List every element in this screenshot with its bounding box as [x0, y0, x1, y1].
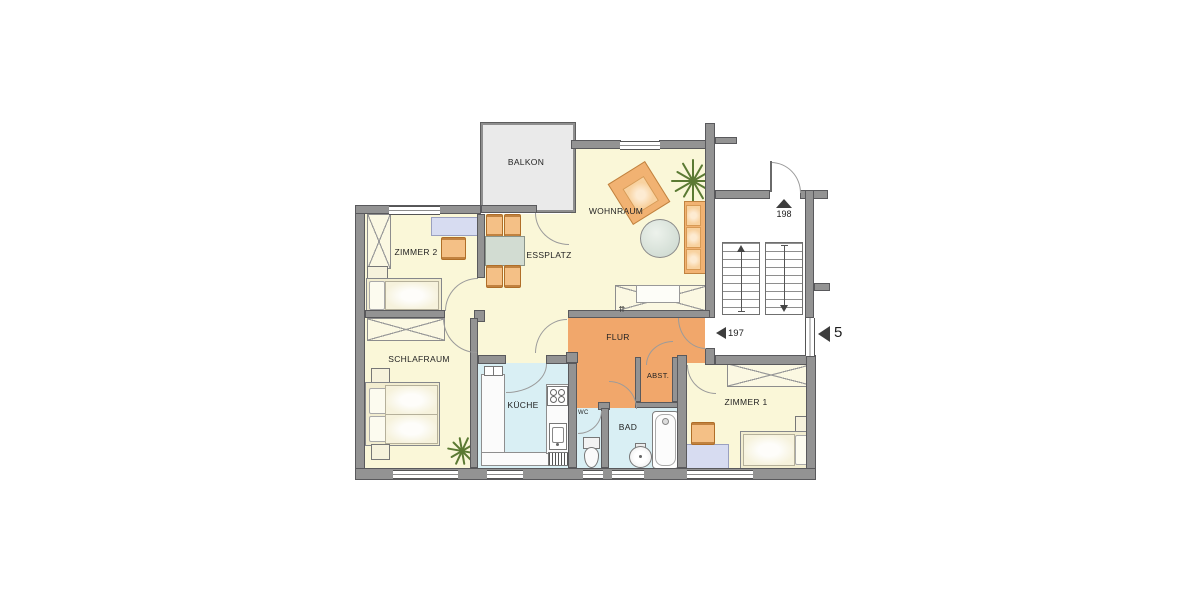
washbasin-symbol: [629, 446, 652, 468]
wall-segment: [571, 140, 621, 149]
wall-segment: [568, 363, 577, 468]
double-bed-symbol: [365, 382, 440, 446]
room-label-zimmer2: ZIMMER 2: [394, 248, 437, 257]
wall-segment: [355, 205, 365, 480]
chair-symbol: [441, 237, 466, 260]
wall-segment: [635, 357, 641, 402]
window: [393, 470, 458, 479]
window: [583, 470, 603, 479]
wall-segment: [715, 190, 770, 199]
kitchen-hob: [493, 366, 503, 376]
wall-segment: [805, 190, 814, 318]
dining-chair-symbol: [504, 265, 521, 288]
wall-segment: [814, 283, 830, 291]
stair-level-198: 198: [776, 210, 791, 219]
round-table-symbol: [640, 219, 680, 258]
dining-chair-symbol: [486, 265, 503, 288]
dishwasher-symbol: [548, 452, 569, 466]
desk-symbol: [681, 444, 729, 469]
room-label-schlafraum: SCHLAFRAUM: [388, 355, 450, 364]
room-label-kueche: KÜCHE: [507, 401, 538, 410]
window: [487, 470, 523, 479]
double-arrow-icon: ⇈: [618, 306, 625, 314]
room-label-wc: WC: [578, 410, 589, 416]
bathtub-symbol: [652, 411, 679, 469]
dining-table-symbol: [485, 236, 525, 266]
room-label-wohnraum: WOHNRAUM: [589, 207, 643, 216]
room-label-abstellraum: ABST.: [647, 372, 669, 380]
stair-flight-down: [765, 242, 803, 315]
stair-level-197: 197: [728, 329, 744, 339]
desk-symbol: [431, 217, 479, 236]
dining-chair-symbol: [486, 214, 503, 237]
window: [805, 318, 815, 356]
door-leaf: [770, 161, 772, 192]
balkon-area: [481, 123, 575, 212]
window: [389, 206, 440, 215]
room-label-essplatz: ESSPLATZ: [526, 251, 571, 260]
level-marker-icon: [716, 327, 726, 339]
wardrobe-symbol: [727, 363, 815, 387]
wall-segment: [478, 355, 506, 364]
room-label-bad: BAD: [619, 423, 637, 432]
wall-segment: [715, 355, 816, 365]
door-arc: [771, 162, 801, 193]
unit-number: 5: [834, 325, 842, 340]
wall-segment: [677, 355, 687, 468]
stove-symbol: [547, 386, 568, 406]
unit-marker-icon: [818, 326, 830, 342]
wall-segment: [568, 310, 710, 318]
wardrobe-symbol: [367, 214, 391, 269]
wall-segment: [477, 214, 485, 278]
kitchen-counter: [481, 374, 505, 454]
wall-segment: [365, 310, 445, 318]
window: [620, 141, 660, 150]
room-label-flur: FLUR: [606, 333, 629, 342]
dining-chair-symbol: [504, 214, 521, 237]
window: [687, 470, 753, 479]
room-label-balkon: BALKON: [508, 158, 544, 167]
chair-symbol: [691, 422, 715, 445]
wardrobe-symbol: [367, 318, 445, 341]
kitchen-sink-symbol: [549, 423, 567, 450]
kitchen-counter: [481, 452, 549, 466]
wall-segment: [705, 348, 715, 365]
floor-plan: BALKON WOHNRAUM ESSPLATZ ZIMMER 2 SCHLAF…: [0, 0, 1200, 600]
stair-flight-up: [722, 242, 760, 315]
bed-symbol: [740, 431, 815, 469]
bed-symbol: [366, 278, 442, 313]
wall-segment: [601, 408, 609, 468]
stair-direction-icon: [776, 199, 792, 208]
wall-segment: [715, 137, 737, 144]
wall-segment: [566, 352, 578, 363]
sideboard-box: [636, 285, 680, 303]
wall-segment: [705, 123, 715, 318]
nightstand-symbol: [371, 444, 390, 460]
wall-segment: [546, 355, 568, 364]
wall-segment: [481, 205, 537, 213]
window: [612, 470, 644, 479]
wall-segment: [806, 356, 816, 480]
wall-segment: [635, 402, 678, 408]
room-label-zimmer1: ZIMMER 1: [724, 398, 767, 407]
